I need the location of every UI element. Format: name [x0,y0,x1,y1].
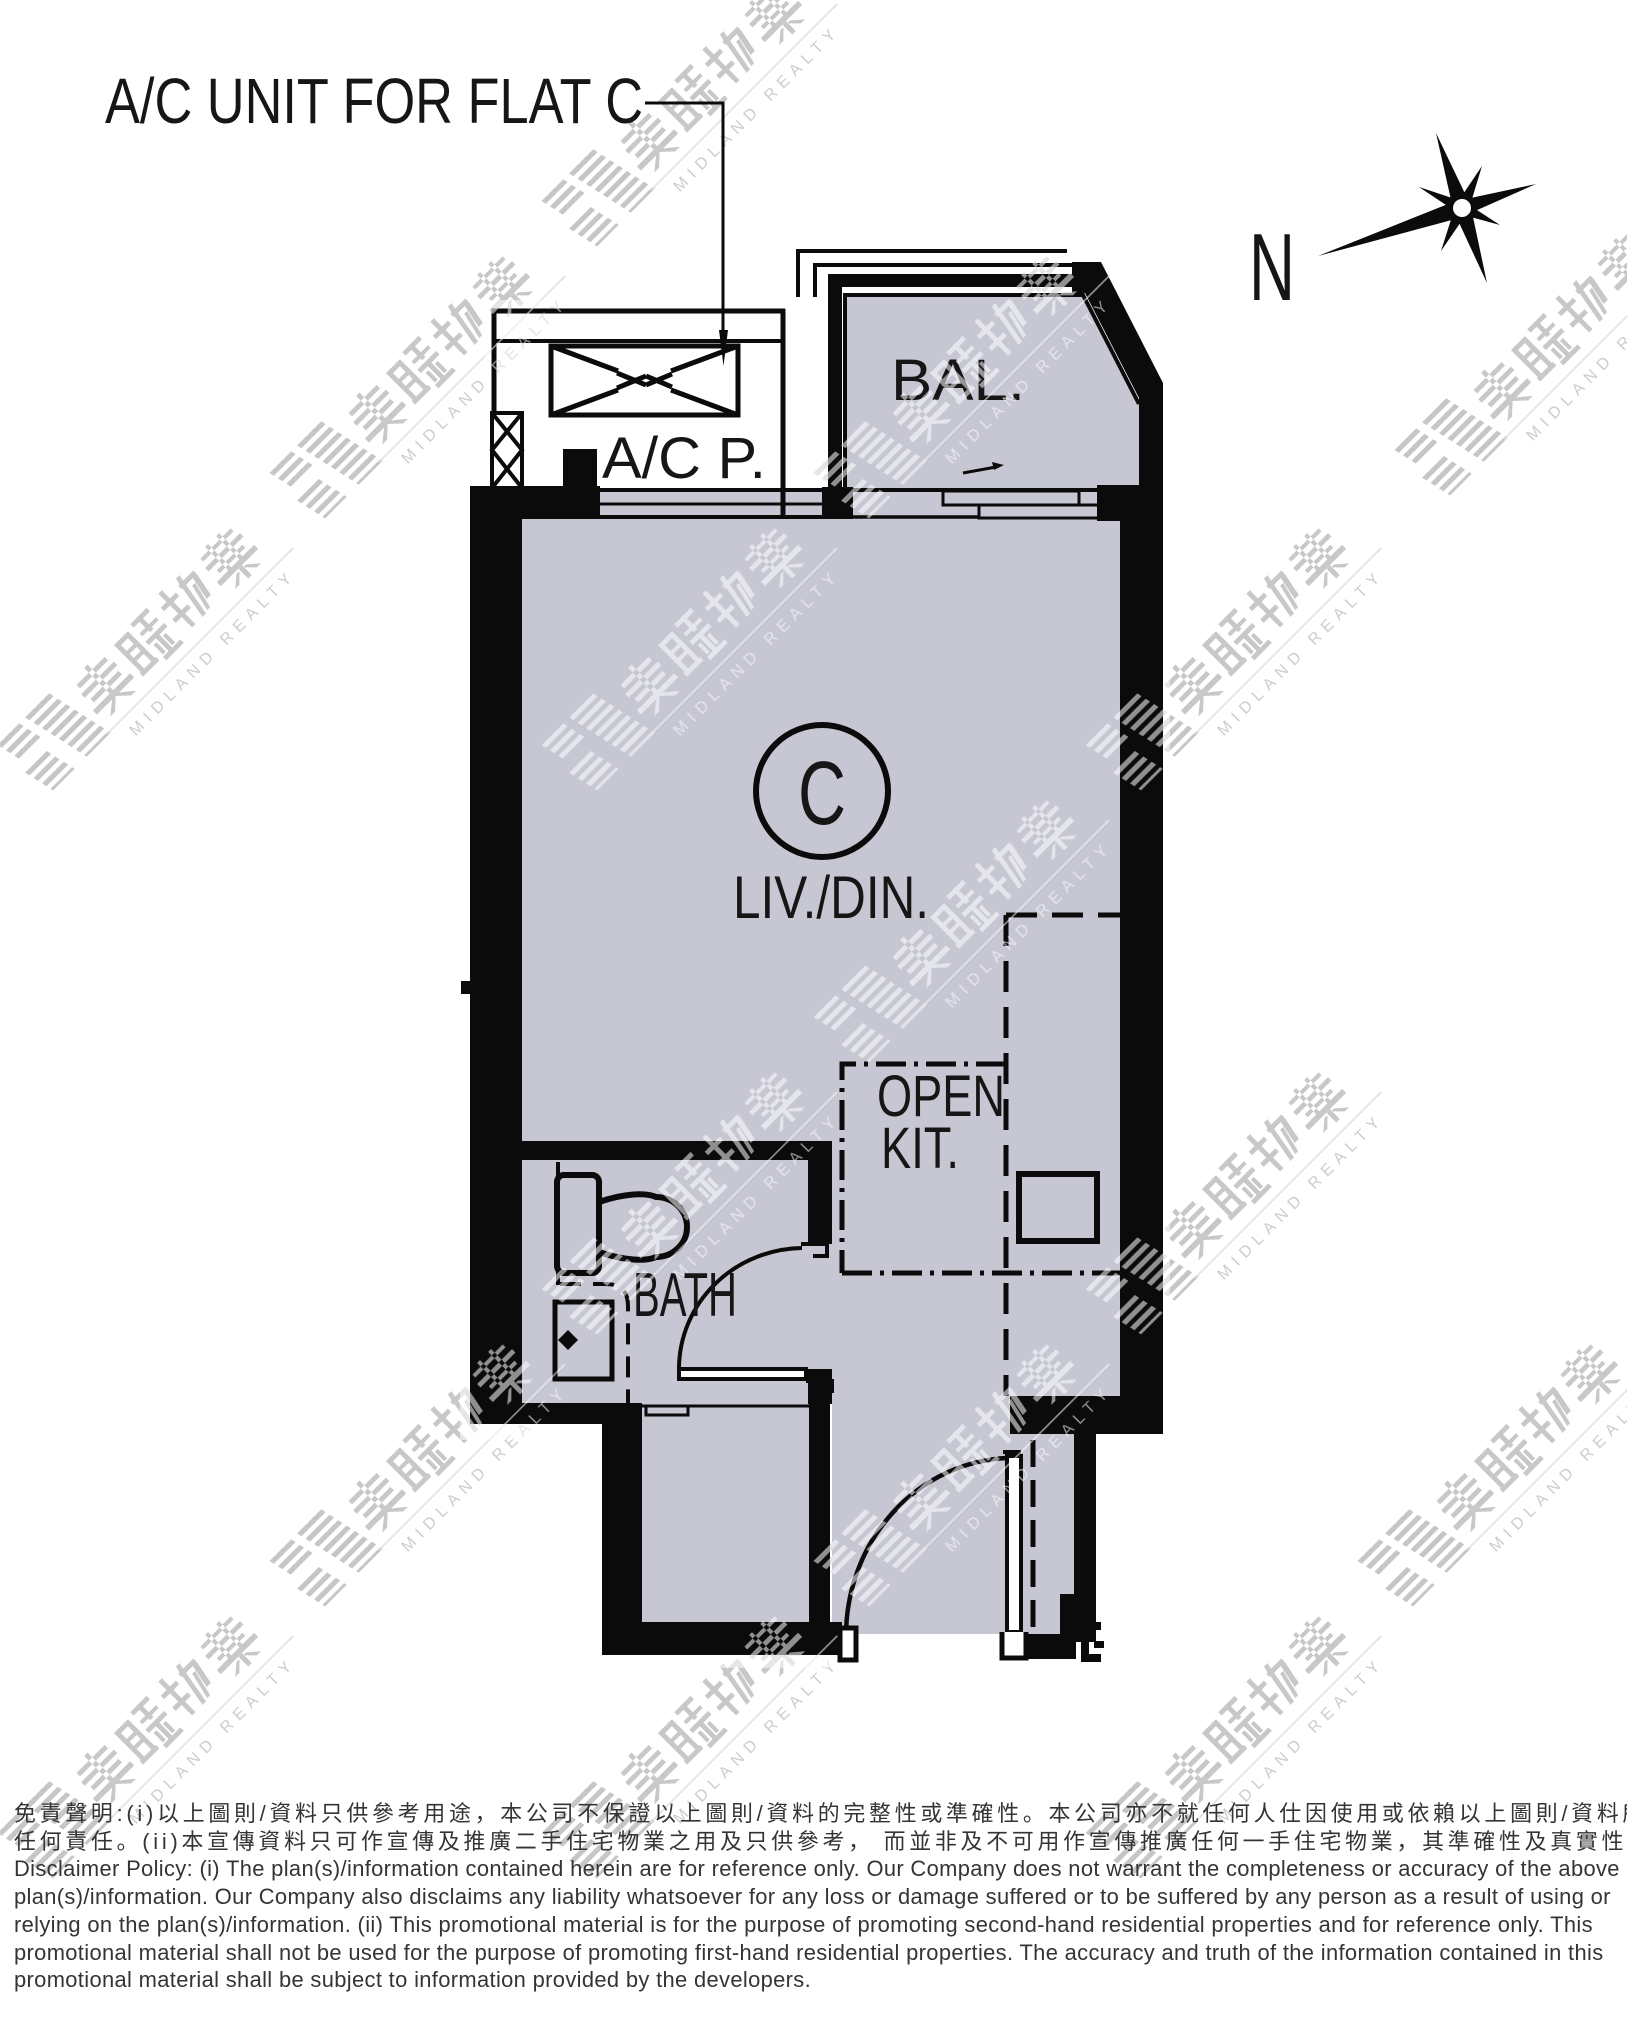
svg-text:A/C UNIT FOR FLAT C: A/C UNIT FOR FLAT C [105,65,643,137]
svg-text:N: N [1249,214,1295,321]
svg-text:KIT.: KIT. [881,1116,959,1181]
svg-text:A/C P.: A/C P. [602,426,766,491]
svg-text:C: C [798,744,846,844]
svg-text:LIV./DIN.: LIV./DIN. [733,864,929,931]
